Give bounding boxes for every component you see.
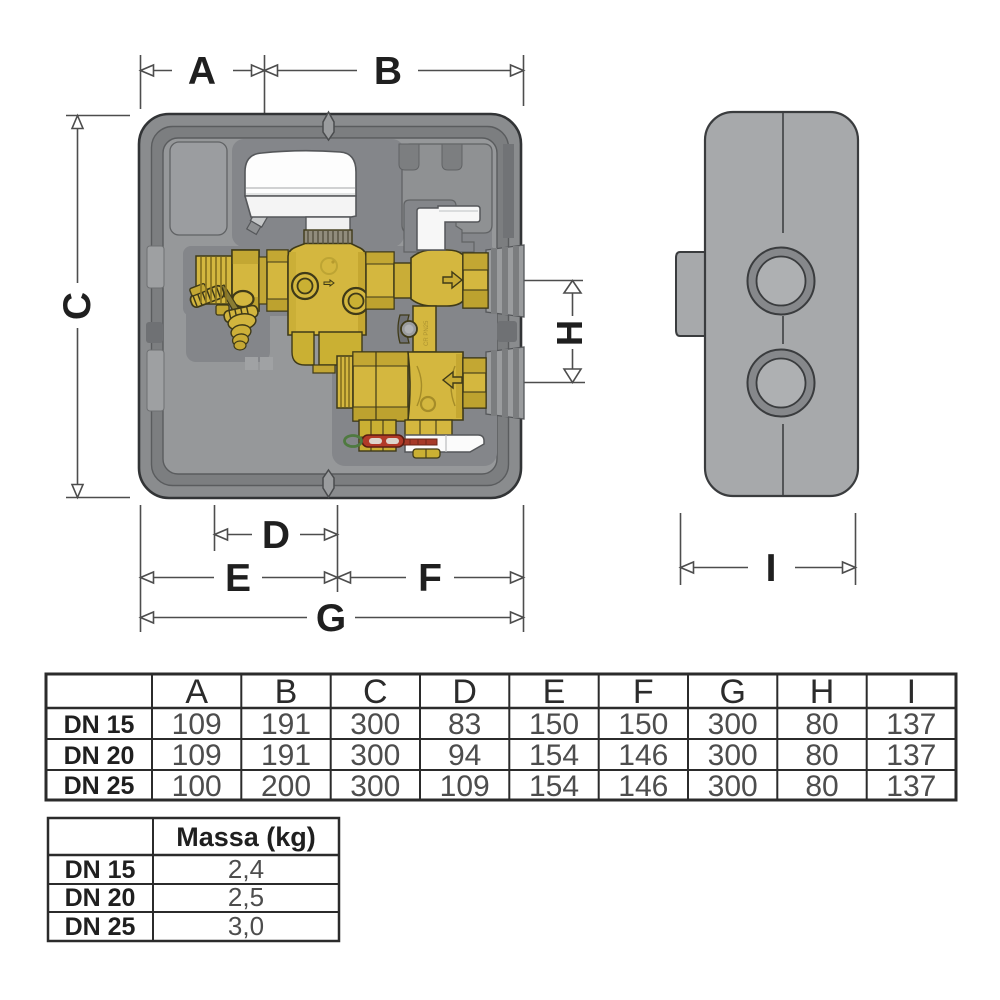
- svg-text:300: 300: [350, 708, 400, 741]
- svg-text:H: H: [810, 673, 835, 711]
- svg-text:83: 83: [448, 708, 481, 741]
- svg-text:191: 191: [261, 708, 311, 741]
- svg-text:C: C: [363, 673, 388, 711]
- svg-text:109: 109: [172, 739, 222, 772]
- svg-text:300: 300: [708, 739, 758, 772]
- svg-text:E: E: [225, 557, 251, 600]
- svg-text:150: 150: [618, 708, 668, 741]
- svg-text:154: 154: [529, 770, 579, 803]
- svg-text:2,5: 2,5: [228, 882, 264, 912]
- svg-text:E: E: [543, 673, 566, 711]
- svg-text:80: 80: [805, 739, 838, 772]
- svg-text:DN 25: DN 25: [65, 913, 136, 941]
- svg-text:G: G: [316, 597, 346, 640]
- svg-text:C: C: [56, 292, 99, 320]
- svg-text:DN 15: DN 15: [65, 856, 136, 884]
- svg-text:F: F: [418, 557, 442, 600]
- svg-text:A: A: [185, 673, 208, 711]
- svg-text:94: 94: [448, 739, 481, 772]
- svg-text:D: D: [452, 673, 477, 711]
- svg-text:G: G: [719, 673, 745, 711]
- svg-text:I: I: [766, 547, 777, 590]
- svg-text:137: 137: [886, 739, 936, 772]
- svg-text:191: 191: [261, 739, 311, 772]
- svg-text:DN 20: DN 20: [65, 884, 136, 912]
- svg-text:A: A: [188, 50, 216, 93]
- svg-text:B: B: [275, 673, 298, 711]
- svg-text:80: 80: [805, 770, 838, 803]
- svg-text:DN 15: DN 15: [64, 711, 135, 739]
- svg-text:300: 300: [350, 770, 400, 803]
- svg-text:137: 137: [886, 770, 936, 803]
- svg-text:300: 300: [350, 739, 400, 772]
- svg-text:154: 154: [529, 739, 579, 772]
- svg-text:DN 25: DN 25: [64, 772, 135, 800]
- svg-text:100: 100: [172, 770, 222, 803]
- svg-text:H: H: [549, 320, 590, 346]
- svg-text:80: 80: [805, 708, 838, 741]
- svg-text:F: F: [633, 673, 654, 711]
- svg-text:DN 20: DN 20: [64, 742, 135, 770]
- svg-text:146: 146: [618, 739, 668, 772]
- svg-text:300: 300: [708, 770, 758, 803]
- svg-text:109: 109: [440, 770, 490, 803]
- svg-text:D: D: [262, 514, 290, 557]
- svg-text:3,0: 3,0: [228, 911, 264, 941]
- svg-text:Massa (kg): Massa (kg): [176, 822, 316, 852]
- svg-text:137: 137: [886, 708, 936, 741]
- svg-text:150: 150: [529, 708, 579, 741]
- svg-text:109: 109: [172, 708, 222, 741]
- svg-text:2,4: 2,4: [228, 854, 264, 884]
- svg-text:146: 146: [618, 770, 668, 803]
- svg-text:I: I: [907, 673, 916, 711]
- svg-text:CR PN25: CR PN25: [424, 320, 430, 346]
- svg-text:200: 200: [261, 770, 311, 803]
- svg-text:300: 300: [708, 708, 758, 741]
- svg-text:B: B: [374, 50, 402, 93]
